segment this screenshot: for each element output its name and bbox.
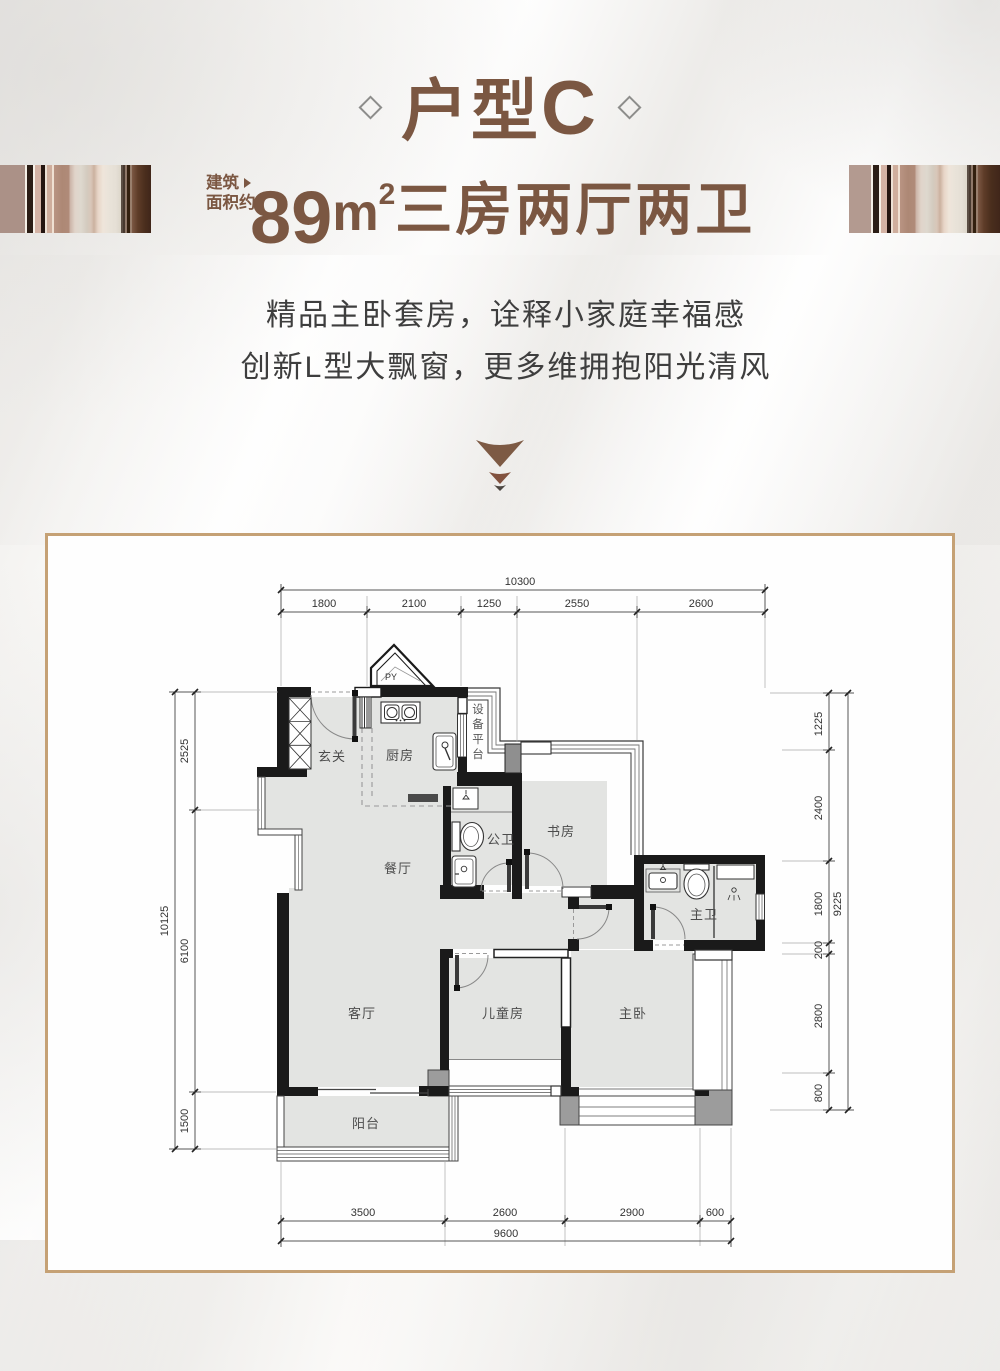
svg-text:书房: 书房 bbox=[547, 824, 575, 839]
svg-text:玄关: 玄关 bbox=[318, 749, 346, 764]
svg-text:9600: 9600 bbox=[494, 1228, 518, 1240]
svg-text:1500: 1500 bbox=[179, 1109, 191, 1133]
svg-text:备: 备 bbox=[472, 717, 484, 731]
svg-text:800: 800 bbox=[813, 1084, 825, 1102]
svg-text:PY: PY bbox=[385, 672, 397, 682]
svg-text:主卧: 主卧 bbox=[619, 1006, 647, 1021]
svg-text:餐厅: 餐厅 bbox=[384, 861, 412, 876]
svg-text:2400: 2400 bbox=[813, 796, 825, 820]
svg-text:1250: 1250 bbox=[477, 598, 501, 610]
svg-text:设: 设 bbox=[472, 703, 484, 716]
svg-text:台: 台 bbox=[472, 747, 484, 761]
svg-text:主卫: 主卫 bbox=[690, 907, 718, 922]
svg-text:10125: 10125 bbox=[159, 906, 171, 937]
svg-text:9225: 9225 bbox=[832, 892, 844, 916]
svg-text:厨房: 厨房 bbox=[386, 748, 414, 763]
svg-text:10300: 10300 bbox=[505, 576, 536, 588]
svg-text:2800: 2800 bbox=[813, 1004, 825, 1028]
svg-text:平: 平 bbox=[472, 734, 484, 746]
svg-text:阳台: 阳台 bbox=[352, 1116, 380, 1131]
svg-text:1800: 1800 bbox=[312, 598, 336, 610]
svg-text:2525: 2525 bbox=[179, 739, 191, 763]
svg-text:200: 200 bbox=[813, 941, 825, 959]
svg-text:2600: 2600 bbox=[493, 1207, 517, 1219]
svg-text:1800: 1800 bbox=[813, 892, 825, 916]
svg-text:客厅: 客厅 bbox=[348, 1006, 376, 1021]
svg-text:2550: 2550 bbox=[565, 598, 589, 610]
svg-text:儿童房: 儿童房 bbox=[482, 1006, 524, 1021]
svg-text:6100: 6100 bbox=[179, 939, 191, 963]
svg-text:2600: 2600 bbox=[689, 598, 713, 610]
svg-text:公卫: 公卫 bbox=[487, 832, 515, 847]
svg-text:600: 600 bbox=[706, 1207, 724, 1219]
svg-text:1225: 1225 bbox=[813, 712, 825, 736]
svg-text:3500: 3500 bbox=[351, 1207, 375, 1219]
svg-text:2900: 2900 bbox=[620, 1207, 644, 1219]
svg-text:2100: 2100 bbox=[402, 598, 426, 610]
